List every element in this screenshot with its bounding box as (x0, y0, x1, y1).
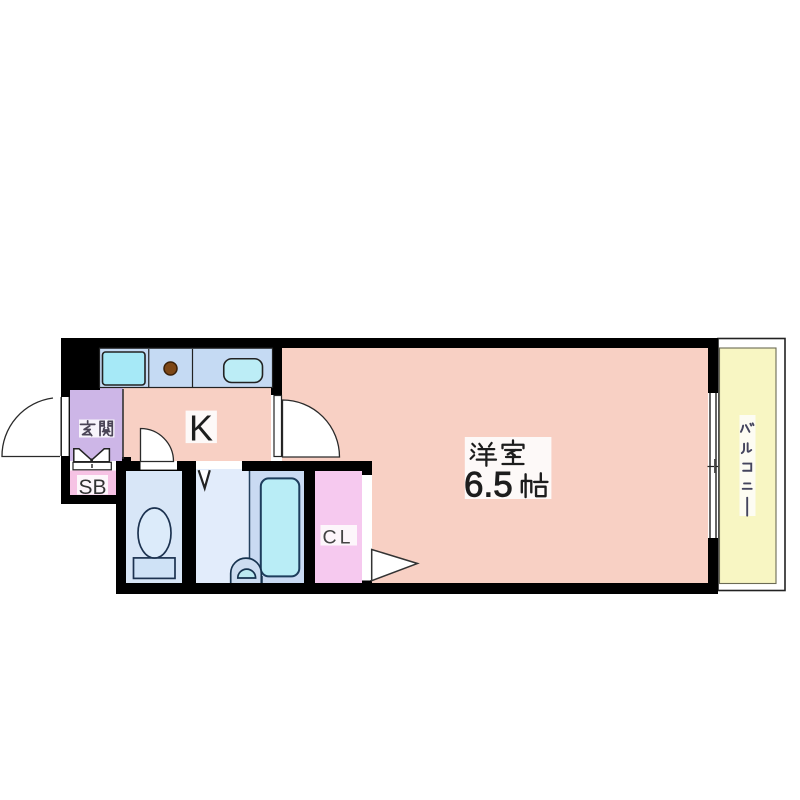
svg-text:CL: CL (323, 527, 354, 549)
svg-text:K: K (189, 408, 213, 449)
svg-text:6.5: 6.5 (464, 466, 513, 505)
svg-text:SB: SB (78, 476, 106, 499)
